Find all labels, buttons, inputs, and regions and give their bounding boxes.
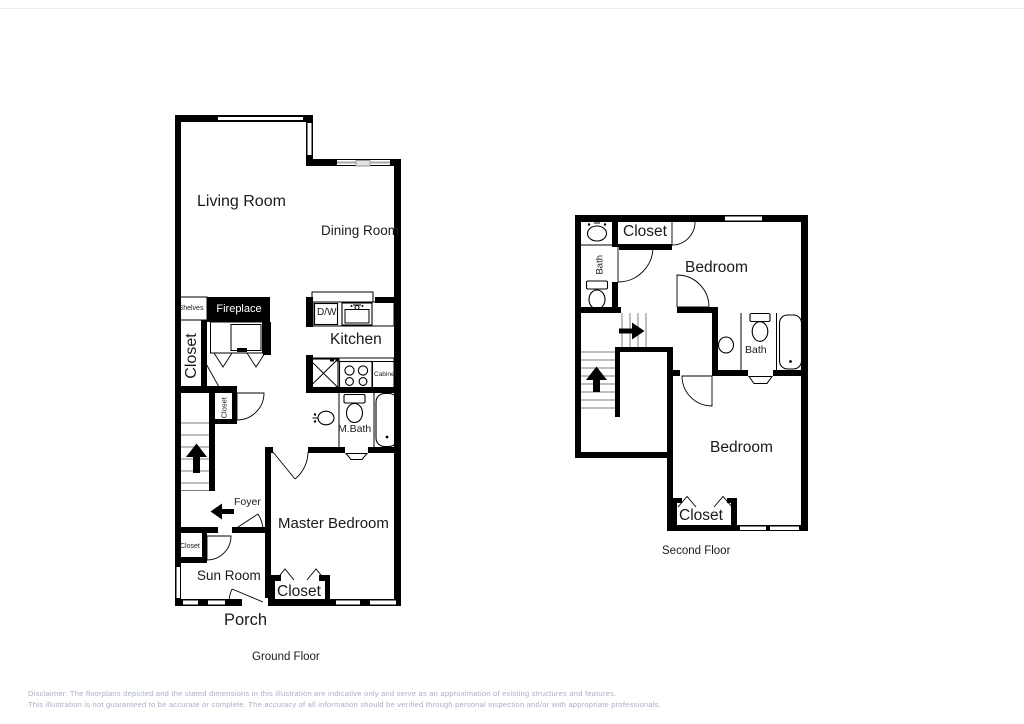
ground-floor-plan <box>175 115 401 607</box>
ground-floor-walls <box>175 115 401 606</box>
bathtub-icon <box>780 315 802 369</box>
door-arc <box>273 452 308 479</box>
door-arc <box>207 536 231 560</box>
door-arc <box>237 393 264 420</box>
closet-main-label: Closet <box>184 326 200 386</box>
disclaimer-line-1: Disclaimer: The floorplans depicted and … <box>28 689 616 698</box>
living-room-label: Living Room <box>197 194 286 210</box>
disclaimer-line-2: This illustration is not guaranteed to b… <box>28 700 661 709</box>
kitchen-label: Kitchen <box>330 332 382 348</box>
second-floor-stairs <box>581 313 646 408</box>
foyer-label: Foyer <box>234 497 261 508</box>
foyer-entry-arrow-icon <box>211 504 235 520</box>
door-arc <box>677 275 709 307</box>
bedroom-top-label: Bedroom <box>685 260 748 276</box>
master-bath-label: M.Bath <box>338 424 371 435</box>
bath-right-label: Bath <box>745 345 767 356</box>
door-arc <box>682 376 712 406</box>
stairs-right-arrow-icon <box>619 323 645 340</box>
sun-room-label: Sun Room <box>197 569 261 583</box>
toilet-icon <box>750 314 770 342</box>
master-bedroom-label: Master Bedroom <box>278 516 389 531</box>
second-floor-caption: Second Floor <box>662 546 730 558</box>
bath-left-label: Bath <box>595 247 605 283</box>
shelves-label: Shelves <box>177 305 205 312</box>
toilet-icon <box>587 281 608 309</box>
bathroom-sink-icon <box>313 411 335 425</box>
bathroom-sink-icon <box>588 223 607 241</box>
fireplace-label: Fireplace <box>209 304 269 315</box>
cabinet-label: Cabinet <box>374 372 396 379</box>
sliding-door-icon <box>346 454 367 460</box>
kitchen-sink-icon <box>342 303 372 325</box>
ground-stairs <box>181 423 209 491</box>
closet-hall-label: Closet <box>220 391 228 425</box>
bedroom-bottom-label: Bedroom <box>710 440 773 456</box>
floorplan-page: Living Room Dining Room Kitchen D/W Cabi… <box>0 0 1024 724</box>
closet-master-label: Closet <box>277 584 321 600</box>
floorplan-drawing <box>0 0 1024 724</box>
closet-top-label: Closet <box>623 224 667 240</box>
stairs-up-arrow-icon <box>186 444 207 474</box>
dining-room-label: Dining Room <box>321 224 399 238</box>
dishwasher-label: D/W <box>317 308 336 318</box>
stove-icon <box>340 362 373 390</box>
door-arc <box>618 247 653 282</box>
toilet-icon <box>344 395 365 423</box>
porch-label: Porch <box>224 612 267 629</box>
page-top-divider <box>0 8 1024 9</box>
stairs-up-arrow-icon <box>586 367 607 393</box>
closet-bottom-label: Closet <box>679 508 723 524</box>
door-arc <box>672 222 695 245</box>
bifold-door-icon <box>214 353 232 367</box>
sliding-door-icon <box>749 377 772 384</box>
closet-sunroom-label: Closet <box>180 543 200 550</box>
bifold-door-icon <box>247 353 265 367</box>
ground-floor-caption: Ground Floor <box>252 652 320 664</box>
counter-x-icon <box>309 359 340 388</box>
